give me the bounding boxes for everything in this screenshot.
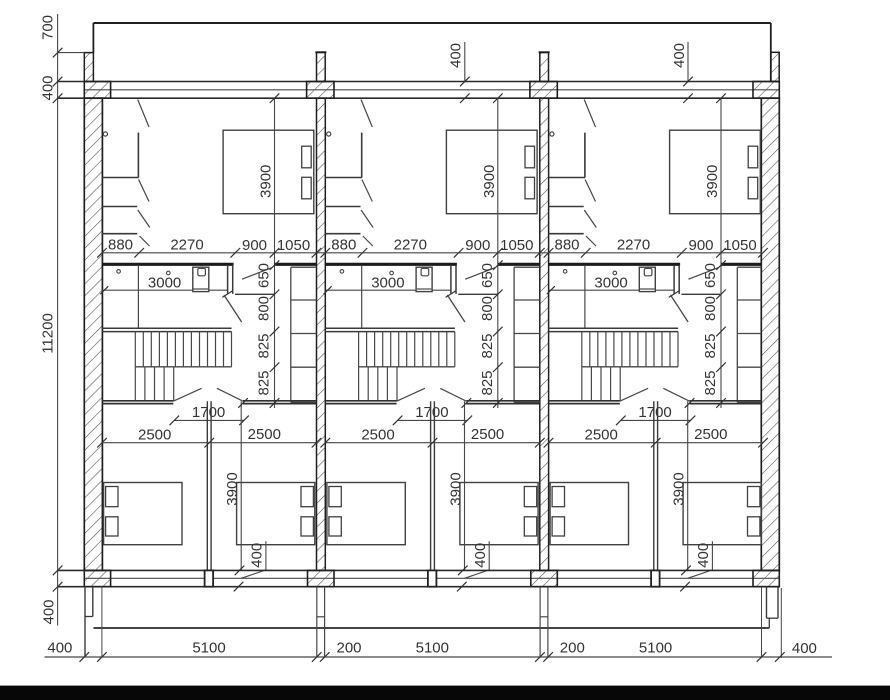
svg-text:880: 880 [331,237,356,254]
svg-text:3900: 3900 [224,472,241,505]
svg-text:400: 400 [448,43,465,68]
svg-text:400: 400 [695,543,712,568]
svg-text:1050: 1050 [723,237,756,254]
svg-text:2500: 2500 [138,427,171,444]
svg-text:1700: 1700 [415,404,448,421]
svg-text:400: 400 [47,640,72,657]
svg-text:3000: 3000 [371,274,404,291]
svg-text:825: 825 [256,333,273,358]
svg-text:5100: 5100 [416,640,449,657]
svg-text:400: 400 [249,543,266,568]
svg-text:825: 825 [702,333,719,358]
svg-text:800: 800 [702,296,719,321]
svg-text:3000: 3000 [594,274,627,291]
svg-text:3900: 3900 [704,165,721,198]
svg-text:400: 400 [671,43,688,68]
svg-text:650: 650 [479,263,496,288]
svg-text:900: 900 [242,237,267,254]
svg-text:11200: 11200 [40,313,57,354]
svg-text:650: 650 [256,263,273,288]
svg-text:800: 800 [479,296,496,321]
svg-text:825: 825 [702,370,719,395]
svg-text:700: 700 [40,15,57,40]
svg-text:1050: 1050 [500,237,533,254]
svg-text:2500: 2500 [361,427,394,444]
svg-text:2500: 2500 [471,426,504,443]
svg-text:400: 400 [40,599,57,624]
svg-text:2270: 2270 [617,237,650,254]
svg-text:3900: 3900 [447,472,464,505]
svg-text:880: 880 [108,237,133,254]
svg-text:2500: 2500 [585,427,618,444]
svg-text:900: 900 [688,237,713,254]
svg-text:3900: 3900 [671,472,688,505]
svg-text:1700: 1700 [638,404,671,421]
svg-text:3900: 3900 [258,165,275,198]
svg-text:1700: 1700 [192,404,225,421]
svg-text:200: 200 [336,640,361,657]
svg-text:650: 650 [702,263,719,288]
svg-text:3000: 3000 [148,274,181,291]
svg-text:2500: 2500 [248,426,281,443]
svg-text:825: 825 [479,370,496,395]
svg-text:2500: 2500 [694,426,727,443]
svg-text:400: 400 [40,75,57,100]
svg-text:200: 200 [560,640,585,657]
svg-text:400: 400 [472,543,489,568]
svg-text:5100: 5100 [639,640,672,657]
svg-text:5100: 5100 [192,640,225,657]
svg-text:900: 900 [465,237,490,254]
svg-text:2270: 2270 [170,237,203,254]
svg-text:825: 825 [256,370,273,395]
svg-text:825: 825 [479,333,496,358]
svg-text:3900: 3900 [481,165,498,198]
svg-text:2270: 2270 [394,237,427,254]
svg-text:880: 880 [554,237,579,254]
svg-text:800: 800 [256,296,273,321]
svg-text:1050: 1050 [277,237,310,254]
svg-text:400: 400 [792,640,817,657]
